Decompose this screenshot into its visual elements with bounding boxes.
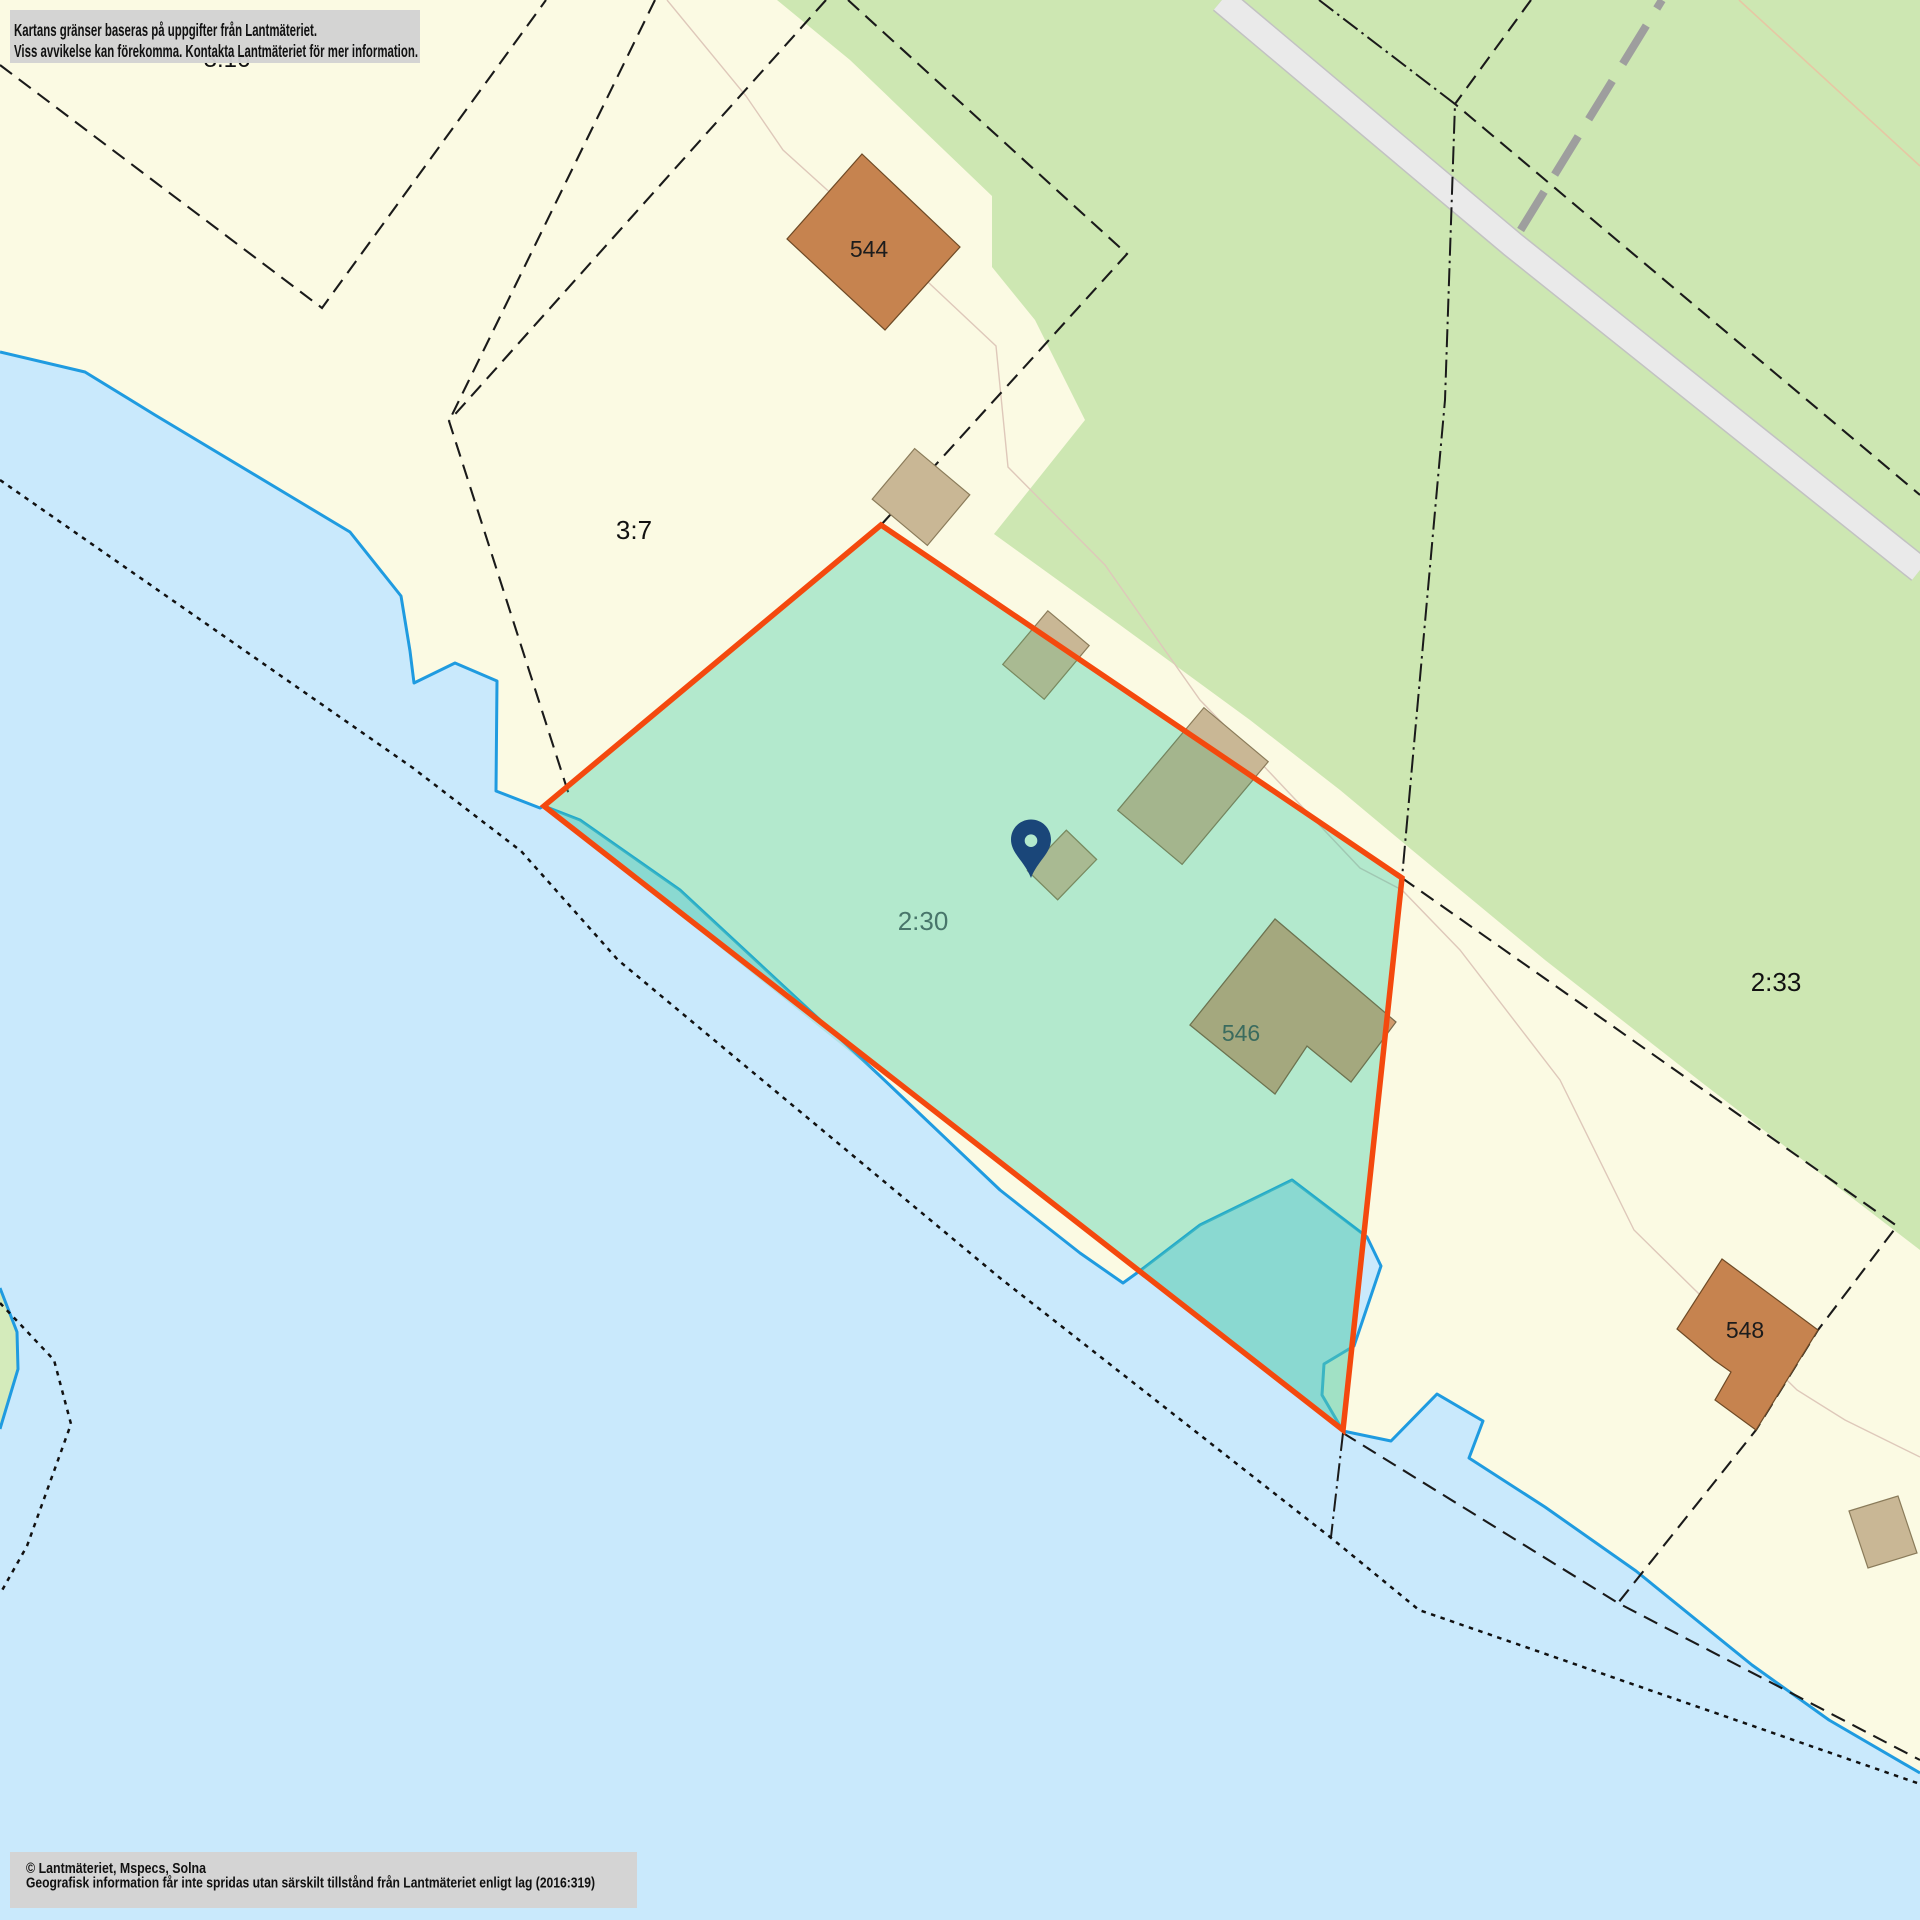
svg-text:544: 544 <box>850 236 889 262</box>
svg-text:3:7: 3:7 <box>616 515 652 545</box>
svg-text:Kartans gränser baseras på upp: Kartans gränser baseras på uppgifter frå… <box>14 20 317 40</box>
svg-text:Geografisk information får int: Geografisk information får inte spridas … <box>26 1876 595 1892</box>
svg-text:548: 548 <box>1726 1317 1764 1343</box>
svg-text:2:30: 2:30 <box>898 906 949 936</box>
svg-text:2:33: 2:33 <box>1751 967 1802 997</box>
svg-text:546: 546 <box>1222 1020 1260 1046</box>
svg-text:Viss avvikelse kan förekomma.: Viss avvikelse kan förekomma. Kontakta L… <box>14 41 418 61</box>
